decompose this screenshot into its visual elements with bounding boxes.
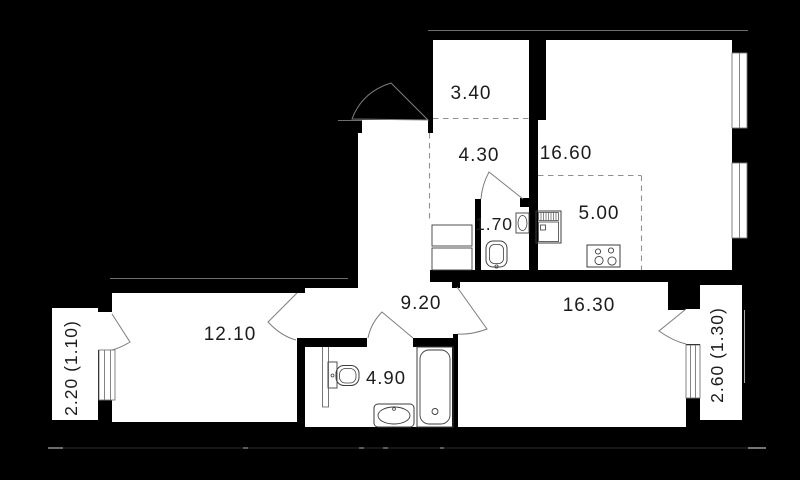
room-label-dressing: 3.40 [451, 83, 492, 104]
floor-plan: 3.40 16.60 4.30 1.70 5.00 9.20 16.30 12.… [0, 0, 800, 480]
room-label-kitchen-living: 16.60 [540, 143, 593, 164]
wall-living-door-stub [452, 282, 460, 288]
wall-hall-kitchen [529, 120, 538, 270]
room-label-bedroom: 12.10 [204, 324, 257, 345]
room-label-bathroom: 4.90 [366, 367, 406, 388]
balcony-left-door-opening [98, 312, 112, 350]
wall-dressing-kitchen [529, 40, 546, 120]
room-label-kitchen-zone: 5.00 [579, 203, 620, 224]
entrance-opening [362, 120, 428, 133]
wall-wc-left [475, 199, 481, 270]
living-room-balcony-window [686, 345, 700, 398]
room-label-living-room: 16.30 [563, 295, 616, 316]
bathroom-door-opening [367, 338, 413, 347]
bedroom-door-opening [297, 293, 305, 338]
room-label-corridor: 9.20 [401, 293, 442, 314]
bedroom-balcony-window [99, 350, 115, 400]
room-floor-corridor-left [305, 288, 358, 338]
balcony-right-door-opening [686, 309, 700, 344]
room-floor-bedroom [112, 293, 297, 422]
room-label-wc: 1.70 [475, 214, 513, 234]
living-room-door-opening [452, 288, 458, 334]
kitchen-window-lower [732, 163, 747, 238]
wall-wc-stub [520, 198, 529, 207]
balcony-right-label: 2.60 (1.30) [707, 307, 727, 403]
room-floor-corridor-vertical [358, 133, 433, 288]
room-label-hallway: 4.30 [459, 145, 500, 166]
wall-bedroom-door-stub [297, 288, 305, 293]
wall-upper-block-bottom [430, 270, 746, 282]
balcony-left-label: 2.20 (1.10) [61, 320, 81, 416]
kitchen-window-upper [732, 53, 747, 128]
wall-living-corner-pier [668, 282, 686, 310]
